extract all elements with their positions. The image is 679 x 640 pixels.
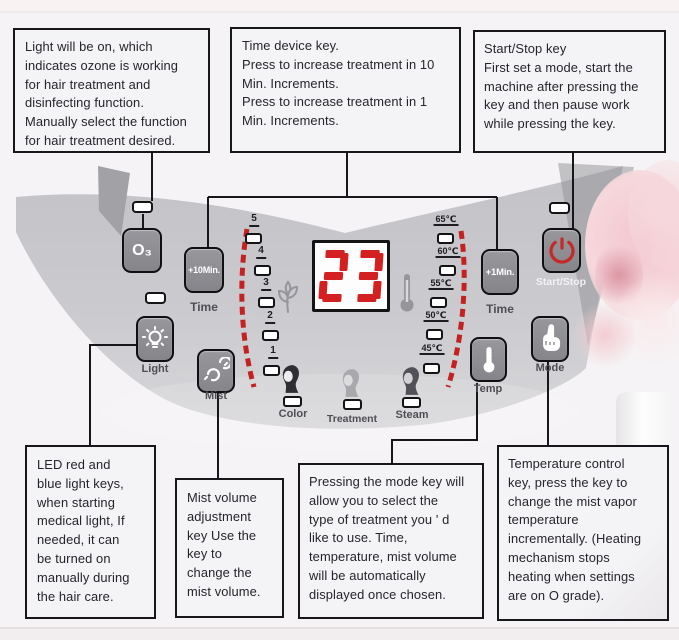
line-lightkey-box-to-o3 [143,152,152,228]
light-button[interactable] [136,316,174,362]
mist-level-indicator-2 [262,330,279,341]
treatment-mode-label: Treatment [327,413,377,425]
mist-level-indicator-5 [245,233,262,244]
steam-mode-indicator [402,397,421,408]
led-display-digits [320,250,382,302]
callout-mode-key: Pressing the mode key will allow you to … [298,463,484,619]
color-mode-head-icon [280,364,304,394]
color-mode-label: Color [279,408,308,420]
start-stop-button[interactable] [542,228,581,273]
callout-light-key: Light will be on, which indicates ozone … [13,28,210,153]
callout-led-light-keys: LED red and blue light keys, when starti… [25,445,156,619]
temp-scale-label-60: 60℃ [436,246,461,258]
mist-button-label: Mist [205,390,227,402]
top-strip [0,0,679,13]
flower-petal [628,160,679,270]
temp-scale-indicator-60 [439,265,456,276]
mist-level-label-2: 2 [265,310,275,324]
temp-button-label: Temp [474,383,503,395]
mist-level-label-4: 4 [256,245,266,259]
power-icon [547,236,577,266]
temp-scale-indicator-50 [426,329,443,340]
treatment-mode-head-icon [340,368,364,398]
temp-scale-label-65: 65℃ [434,214,459,226]
bottom-strip [0,627,679,640]
light-bulb-icon [140,324,170,354]
temp-scale-label-45: 45℃ [420,343,445,355]
flower-petal [575,300,635,370]
mist-level-label-5: 5 [249,213,259,227]
mode-button-label: Mode [536,362,565,374]
temp-scale-indicator-45 [423,363,440,374]
time-left-label: Time [190,300,218,314]
mist-spray-icon [202,357,230,385]
start-stop-button-label: Start/Stop [536,276,586,288]
mist-level-label-1: 1 [268,345,278,359]
plus-10-min-label: +10Min. [188,265,220,275]
steam-mode-head-icon [400,366,424,396]
flower-petal-light [615,275,679,365]
hair-steamer-control-panel-diagram: O₃ Light +10Min. Time Mist 5 4 3 2 [0,0,679,640]
flower-petal-dark [595,240,643,310]
treatment-mode-indicator [343,399,362,410]
light-button-label: Light [142,363,169,375]
left-red-arc [242,229,254,387]
mist-level-indicator-4 [254,265,271,276]
mist-level-label-3: 3 [261,277,271,291]
temp-scale-label-55: 55℃ [429,278,454,290]
mist-button[interactable] [197,349,235,393]
callout-start-stop-key: Start/Stop key First set a mode, start t… [473,30,666,153]
callout-time-key: Time device key. Press to increase treat… [230,27,461,153]
mist-level-indicator-3 [258,297,275,308]
temp-scale-indicator-65 [437,233,454,244]
line-light-button-to-led-box [90,345,137,445]
press-finger-icon [536,324,564,354]
mode-button[interactable] [531,316,569,362]
plus-1-min-button[interactable]: +1Min. [481,249,519,295]
time-right-label: Time [486,302,514,316]
o3-indicator-led [132,201,153,213]
steam-plant-icon [279,282,297,312]
flower-petal [585,170,679,320]
temp-scale-label-50: 50℃ [424,310,449,322]
callout-temperature-key: Temperature control key, press the key t… [497,445,669,621]
callout-mist-volume-key: Mist volume adjustment key Use the key t… [175,478,284,618]
steam-mode-label: Steam [395,409,428,421]
color-mode-indicator [283,396,302,407]
led-display [312,240,390,312]
temp-scale-indicator-55 [430,297,447,308]
thermometer-scale-icon [401,274,414,312]
temp-button[interactable] [470,337,507,382]
light-indicator-led [145,292,166,304]
o3-button[interactable]: O₃ [122,228,162,273]
o3-button-label: O₃ [132,242,152,260]
plus-10-min-button[interactable]: +10Min. [184,247,224,293]
thermometer-icon [476,344,502,376]
panel-corner-flap [98,166,130,236]
mist-level-indicator-1 [263,365,280,376]
plus-1-min-label: +1Min. [486,267,515,278]
start-stop-indicator-led [549,202,570,214]
